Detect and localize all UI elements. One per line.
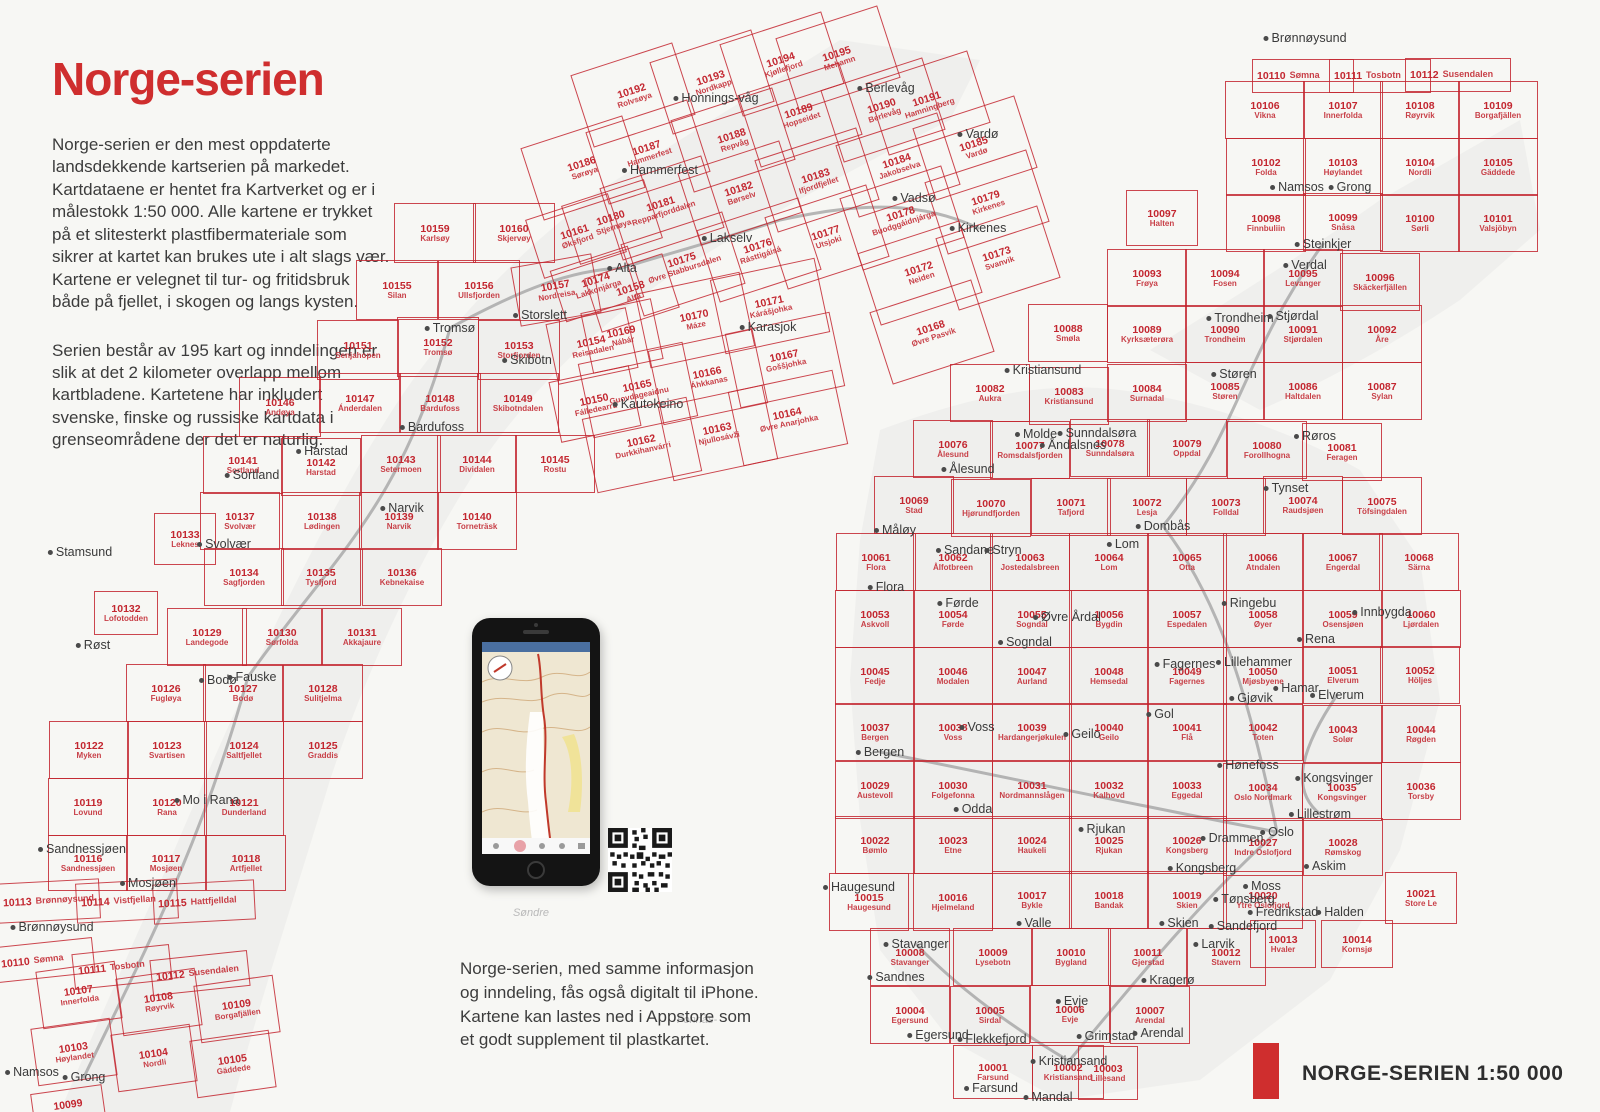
background-label: Søndre (513, 907, 549, 919)
intro-paragraph-2: Serien består av 195 kart og inndelingen… (52, 340, 392, 452)
iphone-screen-map (482, 642, 590, 854)
iphone-image (472, 618, 600, 886)
intro-paragraph-1: Norge-serien er den mest oppdaterte land… (52, 134, 392, 314)
series-logo-mark (1253, 1043, 1279, 1099)
intro-block: Norge-serien Norge-serien er den mest op… (52, 52, 392, 478)
topo-map-screenshot (482, 642, 590, 854)
iphone-caption: Norge-serien, med samme informasjon og i… (460, 957, 760, 1052)
page-title: Norge-serien (52, 52, 392, 106)
iphone-earpiece (523, 630, 549, 634)
qr-code (608, 828, 672, 892)
iphone-home-button (527, 861, 545, 879)
iphone-camera-dot (534, 623, 538, 627)
norge-serien-map-index-page: Norge-serien Norge-serien er den mest op… (0, 0, 1600, 1112)
series-logo-text: NORGE-SERIEN 1:50 000 (1302, 1062, 1563, 1086)
